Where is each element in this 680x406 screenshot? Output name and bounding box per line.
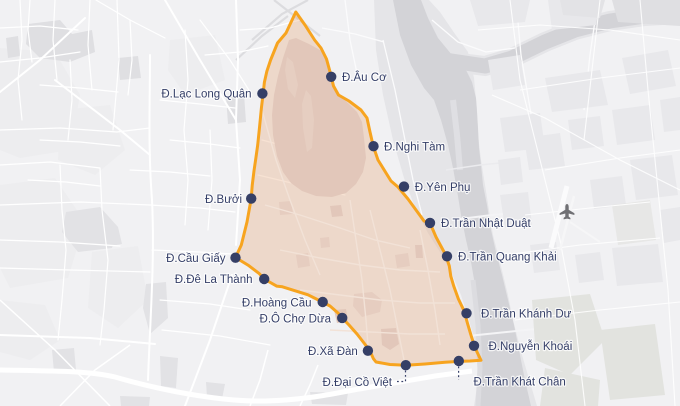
svg-text:Đ.Trần Quang Khải: Đ.Trần Quang Khải — [458, 252, 557, 264]
svg-text:Đ.Đê La Thành: Đ.Đê La Thành — [175, 274, 253, 286]
svg-text:Đ.Âu Cơ: Đ.Âu Cơ — [342, 71, 387, 84]
svg-text:Đ.Yên Phụ: Đ.Yên Phụ — [415, 182, 471, 194]
svg-text:Đ.Bưởi: Đ.Bưởi — [205, 194, 242, 206]
svg-text:Đ.Ô Chợ Dừa: Đ.Ô Chợ Dừa — [260, 313, 332, 326]
svg-text:Đ.Trần Nhật Duật: Đ.Trần Nhật Duật — [441, 218, 531, 230]
svg-text:Đ.Đại Cồ Việt: Đ.Đại Cồ Việt — [323, 377, 393, 389]
svg-text:Đ.Trần Khánh Dư: Đ.Trần Khánh Dư — [481, 309, 572, 321]
svg-text:Đ.Cầu Giấy: Đ.Cầu Giấy — [166, 253, 226, 265]
svg-text:Đ.Xã Đàn: Đ.Xã Đàn — [308, 346, 358, 358]
svg-text:Đ.Trần Khát Chân: Đ.Trần Khát Chân — [474, 377, 566, 389]
svg-text:Đ.Nguyễn Khoái: Đ.Nguyễn Khoái — [489, 340, 573, 353]
svg-text:Đ.Hoàng Cầu: Đ.Hoàng Cầu — [242, 298, 312, 310]
svg-text:Đ.Lạc Long Quân: Đ.Lạc Long Quân — [161, 89, 251, 101]
svg-text:Đ.Nghi Tàm: Đ.Nghi Tàm — [384, 141, 445, 153]
